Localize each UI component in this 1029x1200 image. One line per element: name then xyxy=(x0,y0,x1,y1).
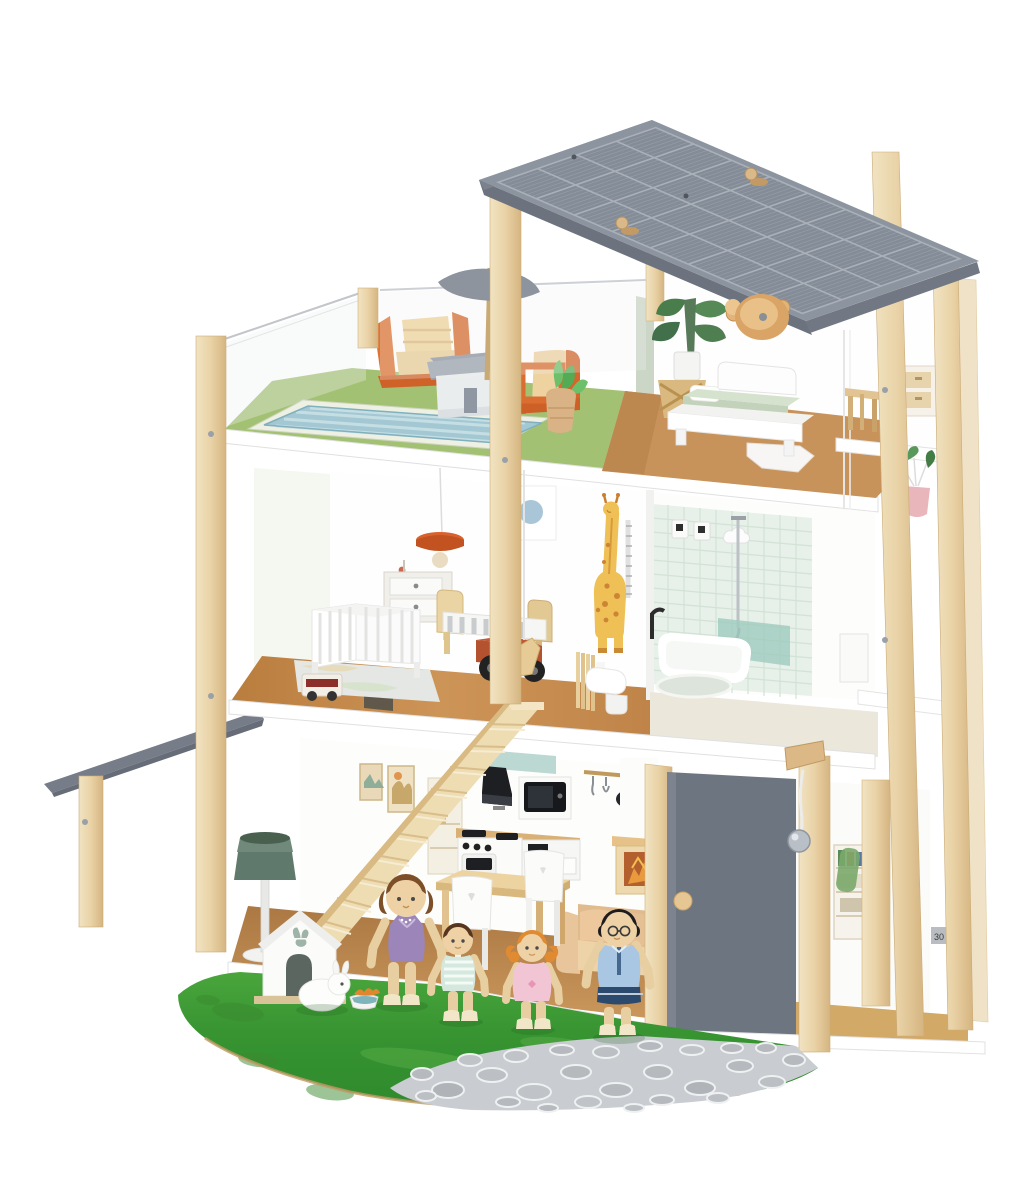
svg-text:30: 30 xyxy=(934,932,944,942)
